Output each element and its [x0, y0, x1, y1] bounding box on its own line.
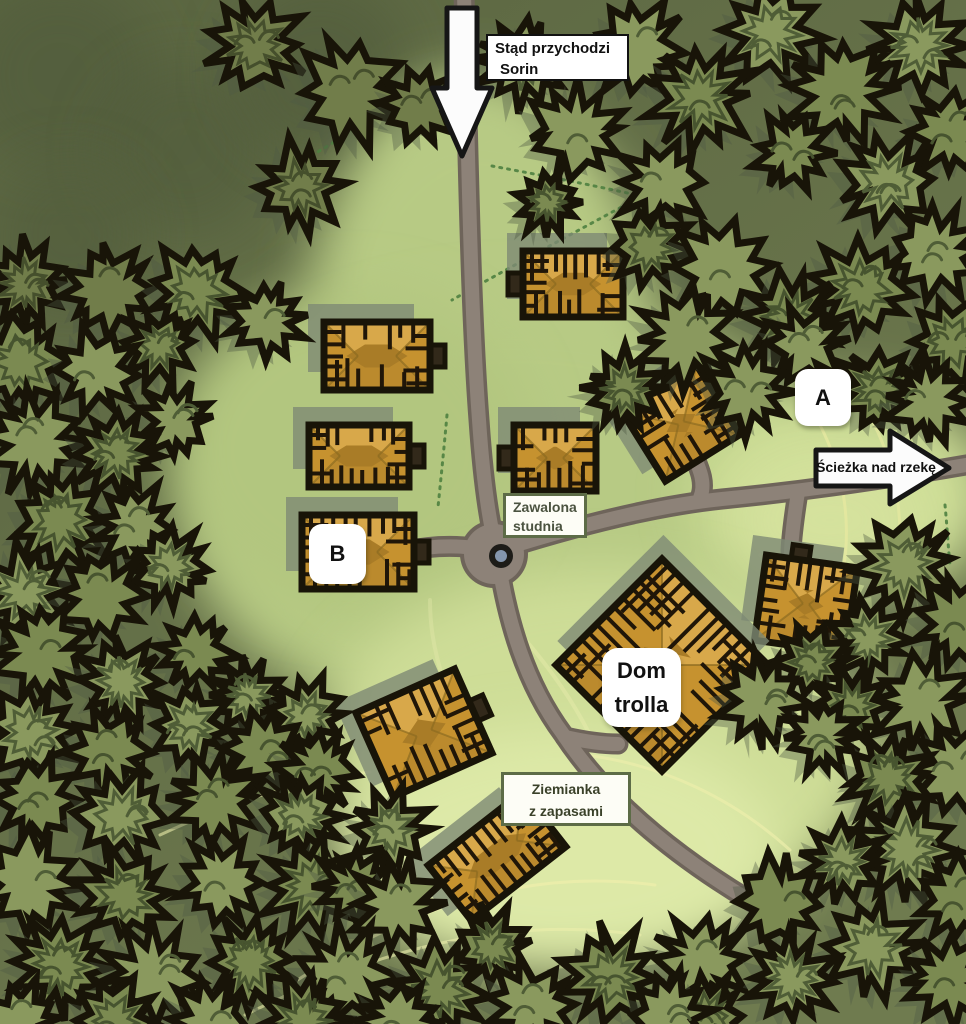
marker-a: A	[795, 369, 851, 426]
marker-b: B	[309, 524, 366, 584]
village-map-svg	[0, 0, 966, 1024]
village-map: Stąd przychodzi Sorin Ścieżka nad rzekę …	[0, 0, 966, 1024]
label-well-line2: studnia	[513, 517, 584, 536]
label-supply-dugout: Ziemianka z zapasami	[501, 772, 631, 826]
label-sorin: Stąd przychodzi Sorin	[486, 34, 629, 81]
label-cellar-line1: Ziemianka	[504, 778, 628, 800]
house	[507, 233, 623, 317]
label-river-path: Ścieżka nad rzekę	[810, 459, 942, 475]
collapsed-well	[489, 544, 513, 568]
label-troll-line1: Dom	[617, 654, 666, 688]
label-troll-house: Dom trolla	[602, 648, 681, 727]
label-sorin-line1: Stąd przychodzi	[495, 38, 623, 59]
road	[565, 737, 618, 744]
label-troll-line2: trolla	[615, 688, 669, 722]
label-collapsed-well: Zawalona studnia	[503, 493, 587, 538]
label-sorin-line2: Sorin	[500, 59, 623, 80]
label-cellar-line2: z zapasami	[504, 800, 628, 822]
label-well-line1: Zawalona	[513, 498, 584, 517]
